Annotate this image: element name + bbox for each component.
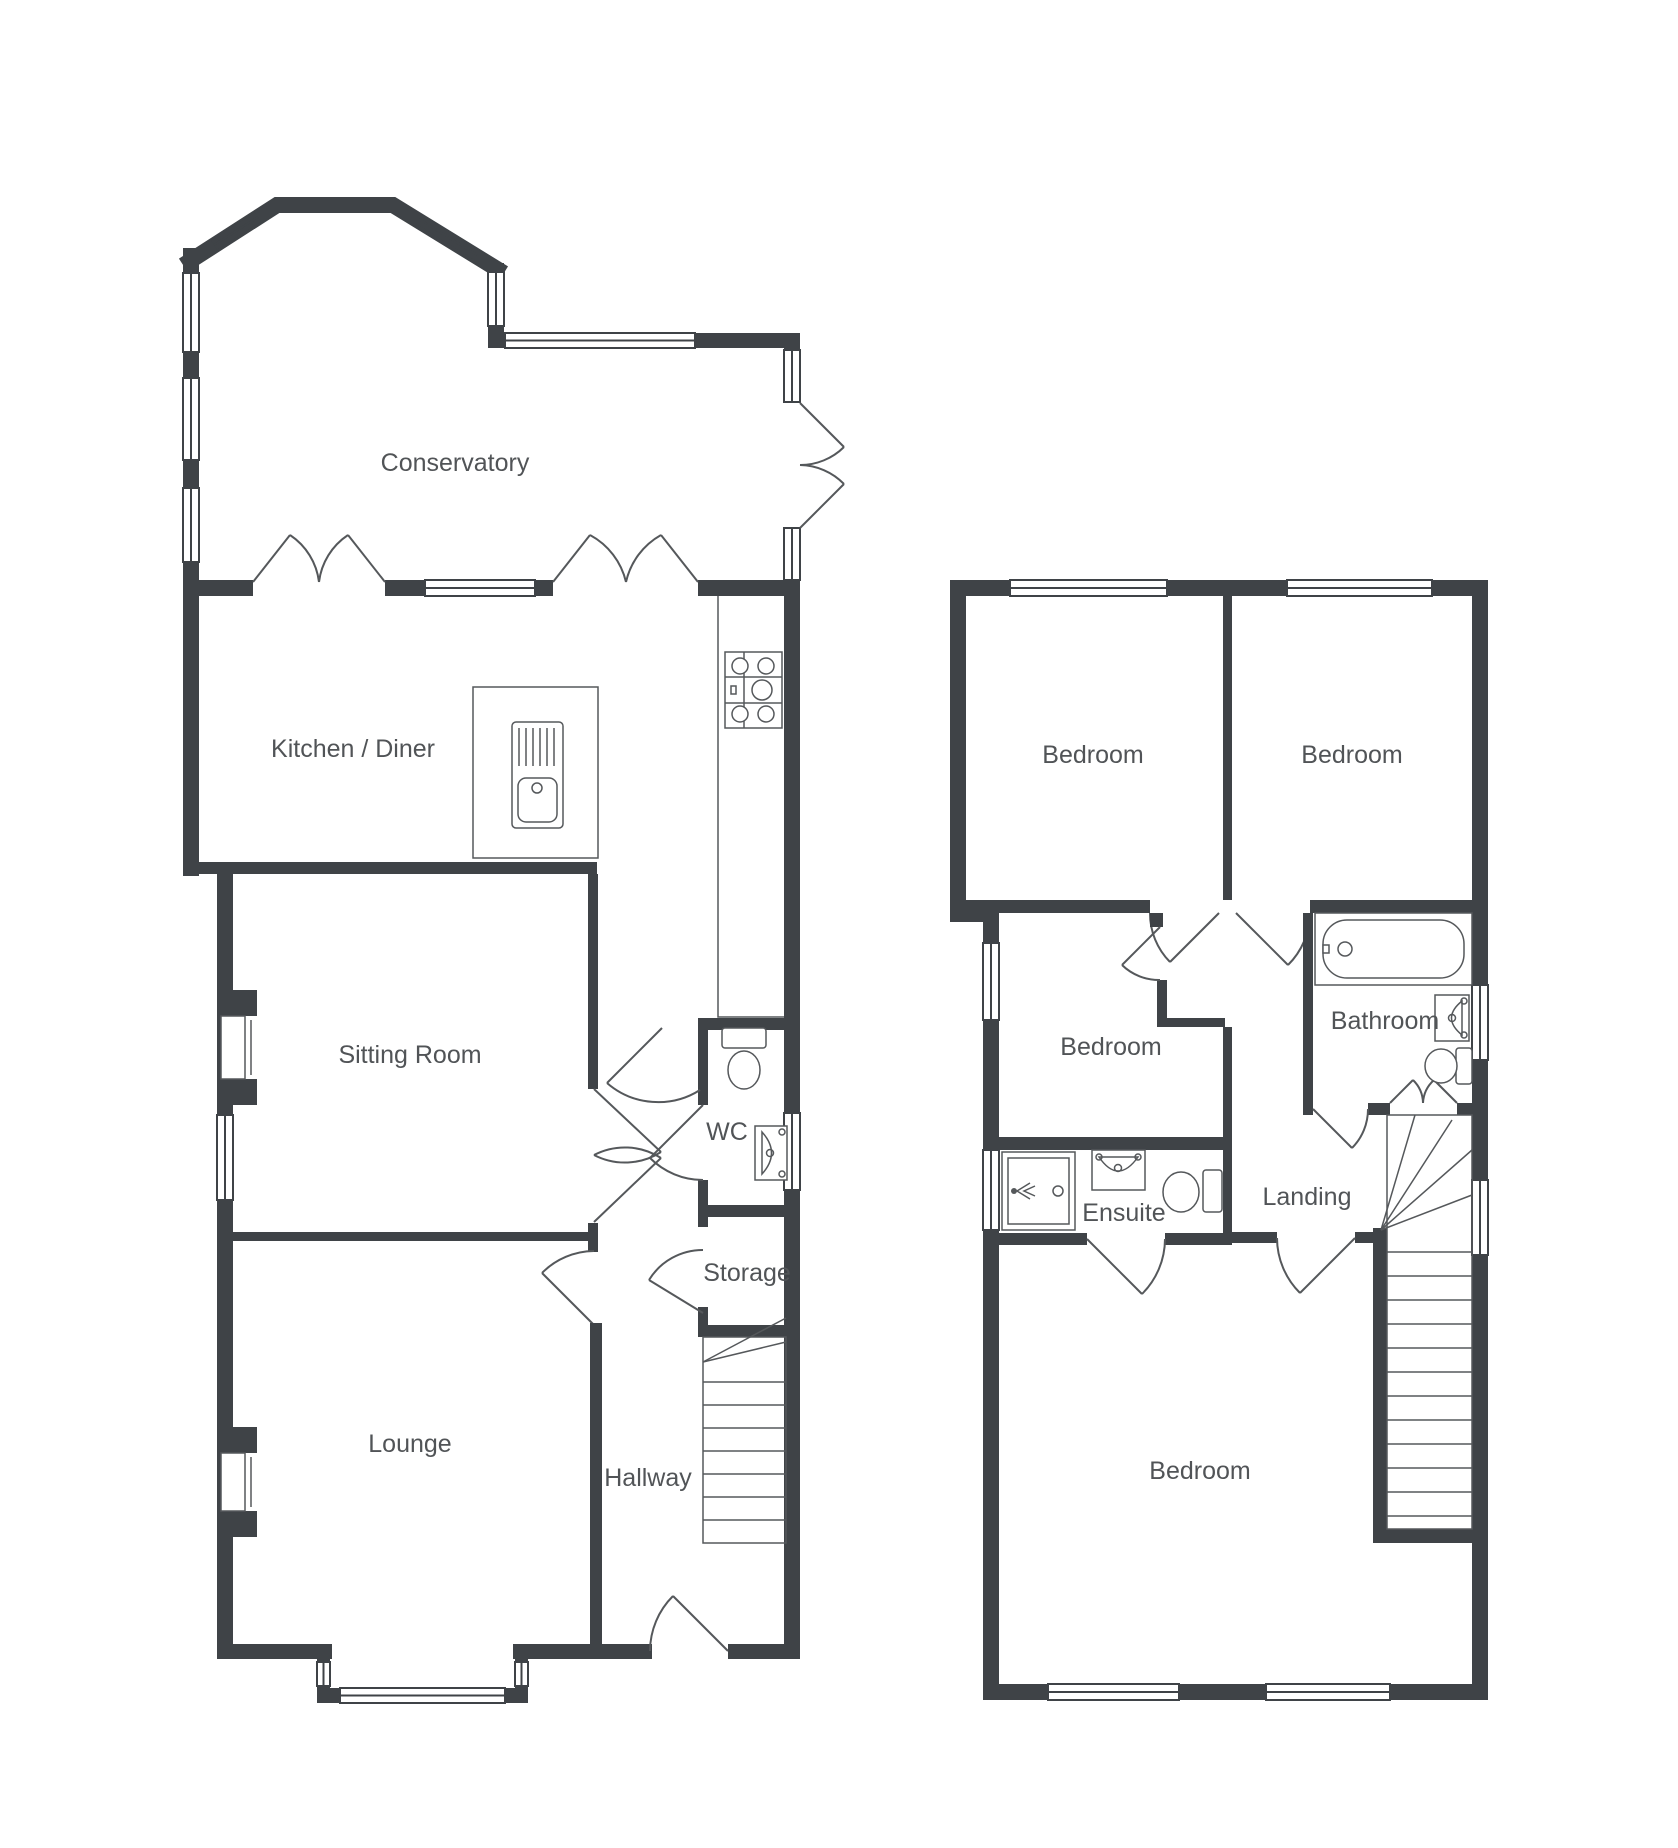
front-door-icon: [650, 1596, 728, 1651]
hob-icon: [725, 652, 782, 728]
lounge-right-wall: [590, 1323, 602, 1644]
ground-bottom-wall: [217, 1644, 800, 1659]
room-label-conservatory: Conservatory: [381, 449, 530, 477]
wash-basin-icon: [755, 1126, 787, 1180]
window: [183, 488, 199, 562]
door-arc: [1236, 913, 1310, 965]
french-doors-icon: [553, 535, 698, 582]
door-arc: [607, 1028, 700, 1102]
ground-left-wall-lower: [217, 862, 233, 1659]
window: [1287, 580, 1432, 596]
fireplace-icon: [217, 990, 257, 1105]
room-label-wc: WC: [706, 1118, 748, 1146]
toilet-icon: [1163, 1170, 1222, 1212]
door-arc: [650, 1105, 703, 1180]
room-label-storage: Storage: [703, 1259, 791, 1287]
bath-tub-icon: [1315, 913, 1472, 985]
floorplan-page: Conservatory Kitchen / Diner Sitting Roo…: [0, 0, 1678, 1848]
double-doors-icon: [594, 1089, 661, 1222]
bedroom-divider-wall: [1223, 596, 1232, 900]
patio-double-doors-icon: [800, 403, 844, 528]
tap-icon: [532, 783, 542, 793]
ensuite-top-wall: [983, 1137, 1223, 1150]
staircase: [703, 1318, 786, 1543]
room-label-bedroom-3: Bedroom: [1060, 1033, 1161, 1061]
toilet-icon: [1425, 1048, 1472, 1084]
first-bottom-wall: [983, 1684, 1488, 1700]
room-label-lounge: Lounge: [368, 1430, 451, 1458]
door-arc: [1087, 1239, 1165, 1294]
french-doors-icon: [253, 535, 385, 582]
lounge-bay-window: [317, 1659, 528, 1703]
ground-floor-plan: Conservatory Kitchen / Diner Sitting Roo…: [183, 205, 844, 1703]
window: [1472, 1180, 1488, 1255]
window: [425, 580, 535, 596]
room-label-sitting-room: Sitting Room: [338, 1041, 481, 1069]
window: [183, 378, 199, 460]
window: [784, 528, 800, 580]
shower-cubicle-icon: [1002, 1152, 1075, 1230]
room-label-bathroom: Bathroom: [1331, 1007, 1439, 1035]
ground-left-wall-upper: [183, 248, 199, 876]
kitchen-conservatory-wall: [183, 535, 800, 598]
door-arc: [649, 1250, 703, 1313]
room-label-bedroom-2: Bedroom: [1301, 741, 1402, 769]
floorplan-drawing: Conservatory Kitchen / Diner Sitting Roo…: [0, 0, 1678, 1848]
sitting-room-right-wall: [588, 874, 598, 1252]
door-arc: [542, 1251, 594, 1325]
room-label-ensuite: Ensuite: [1082, 1199, 1165, 1227]
toilet-icon: [722, 1028, 766, 1089]
room-label-bedroom-1: Bedroom: [1042, 741, 1143, 769]
window: [1472, 985, 1488, 1060]
window: [1048, 1684, 1179, 1700]
staircase: [1373, 1115, 1472, 1543]
door-arc: [1122, 927, 1160, 980]
room-label-hallway: Hallway: [604, 1464, 692, 1492]
wash-basin-icon: [1435, 995, 1469, 1041]
kitchen-sitting-wall: [183, 862, 597, 874]
fireplace-icon: [217, 1427, 257, 1537]
room-label-kitchen-diner: Kitchen / Diner: [271, 735, 435, 763]
window: [217, 1115, 233, 1200]
bedrooms-bottom-wall: [950, 900, 1488, 913]
first-floor-plan: Bedroom Bedroom Bedroom Bathroom Ensuite…: [950, 580, 1488, 1700]
door-arc: [1277, 1238, 1355, 1293]
first-top-wall: [950, 580, 1488, 596]
conservatory-bay-window: [190, 205, 504, 337]
conservatory-right-top-wall: [488, 333, 800, 348]
window: [983, 943, 999, 1020]
room-label-landing: Landing: [1263, 1183, 1352, 1211]
room-label-bedroom-4: Bedroom: [1149, 1457, 1250, 1485]
ensuite-bottom-wall: [983, 1233, 1232, 1245]
window: [1010, 580, 1167, 596]
window: [983, 1150, 999, 1230]
wash-basin-icon: [1092, 1150, 1145, 1190]
window: [784, 350, 800, 402]
cupboard-doors-icon: [1390, 1080, 1457, 1103]
window: [183, 273, 199, 352]
first-right-wall: [1472, 596, 1488, 1700]
kitchen-island-sink: [473, 687, 598, 858]
door-arc: [1313, 1109, 1368, 1148]
window: [1266, 1684, 1390, 1700]
ground-right-wall: [782, 348, 802, 1659]
sitting-lounge-wall: [217, 1232, 593, 1241]
